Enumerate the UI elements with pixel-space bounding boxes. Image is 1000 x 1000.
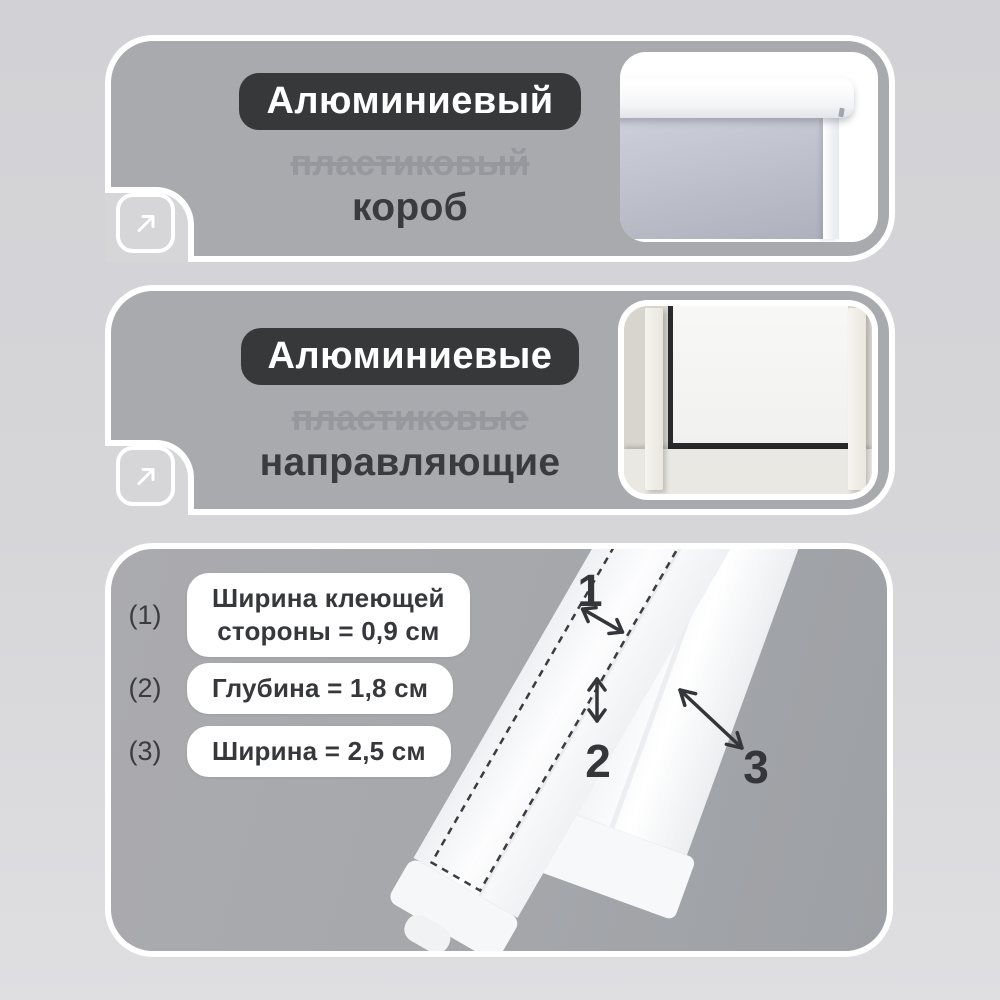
strikethrough-plastic-box: пластиковый	[291, 142, 530, 184]
guide-rail-right	[848, 308, 866, 490]
window-corner-photo	[624, 306, 872, 494]
spec-text-line: Глубина = 1,8 см	[212, 672, 428, 705]
up-right-arrow-glyph	[131, 461, 161, 491]
product-infographic-page: Алюминиевый пластиковый короб Алюминиевы…	[0, 0, 1000, 1000]
photo-roller-blind-cassette	[620, 52, 878, 242]
specs-card-dimensions: 1 2 3 (1) Ширина клеющей стороны = 0,9 с…	[105, 543, 893, 957]
spec-row-depth: (2) Глубина = 1,8 см	[119, 663, 453, 714]
strikethrough-plastic-guides: пластиковые	[292, 397, 529, 439]
spec-pill-adhesive-width: Ширина клеющей стороны = 0,9 см	[187, 573, 470, 657]
spec-text-line: Ширина клеющей	[212, 582, 445, 615]
spec-row-adhesive-width: (1) Ширина клеющей стороны = 0,9 см	[119, 573, 470, 657]
expand-arrow-icon	[116, 446, 175, 506]
spec-pill-depth: Глубина = 1,8 см	[187, 663, 453, 714]
feature-card-aluminum-guides: Алюминиевые пластиковые направляющие	[105, 285, 895, 515]
blind-side-rail	[823, 118, 839, 239]
spec-pill-width: Ширина = 2,5 см	[187, 726, 451, 777]
spec-index-2: (2)	[119, 673, 171, 704]
card-1-text-block: Алюминиевый пластиковый короб	[129, 73, 691, 230]
badge-aluminum-box: Алюминиевый	[239, 73, 580, 130]
aluminum-cassette-box	[620, 78, 854, 118]
expand-arrow-icon	[116, 193, 175, 253]
card-2-text-block: Алюминиевые пластиковые направляющие	[129, 328, 691, 485]
marker-1: 1	[577, 565, 602, 616]
photo-window-guides	[618, 300, 878, 500]
spec-text-line: стороны = 0,9 см	[212, 615, 445, 648]
blind-fabric	[620, 118, 823, 239]
window-glass	[668, 306, 848, 449]
card-1-title: короб	[352, 186, 468, 230]
spec-text-line: Ширина = 2,5 см	[212, 735, 426, 768]
marker-3: 3	[743, 741, 769, 793]
card-2-title: направляющие	[260, 441, 561, 485]
badge-aluminum-guides: Алюминиевые	[241, 328, 580, 385]
spec-index-1: (1)	[119, 600, 171, 631]
spec-index-3: (3)	[119, 736, 171, 767]
guide-rail-left	[645, 308, 663, 490]
spec-row-width: (3) Ширина = 2,5 см	[119, 726, 451, 777]
marker-2: 2	[585, 735, 611, 787]
feature-card-aluminum-box: Алюминиевый пластиковый короб	[105, 35, 895, 262]
up-right-arrow-glyph	[131, 208, 161, 238]
